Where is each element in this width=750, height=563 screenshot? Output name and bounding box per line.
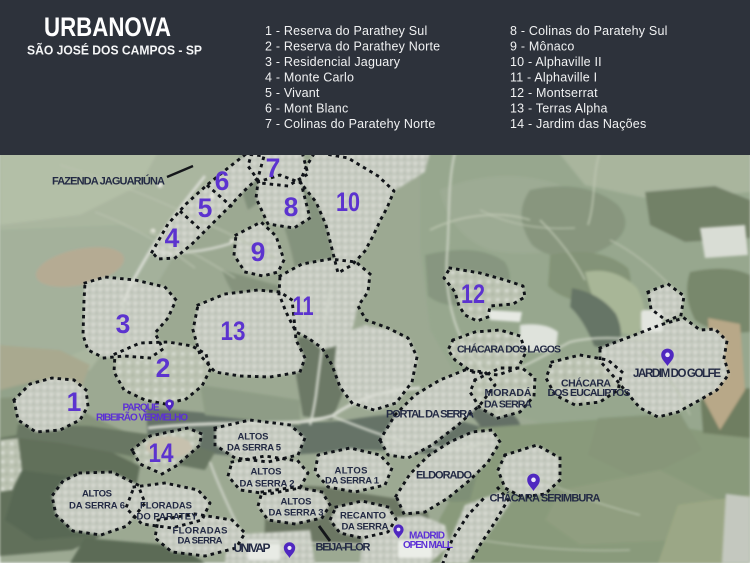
svg-text:DO PARATEY: DO PARATEY [137,512,199,523]
svg-text:5 - Vivant: 5 - Vivant [265,86,320,100]
svg-text:BEIJA-FLOR: BEIJA-FLOR [316,542,371,554]
svg-text:5: 5 [198,193,213,223]
svg-text:14 - Jardim das Nações: 14 - Jardim das Nações [510,117,646,131]
svg-text:DOS EUCALIPTOS: DOS EUCALIPTOS [548,387,631,399]
svg-text:9 - Mônaco: 9 - Mônaco [510,40,575,54]
svg-text:DA SERRA: DA SERRA [484,399,532,411]
svg-text:ALTOS: ALTOS [82,489,112,500]
svg-text:11: 11 [293,291,314,321]
svg-text:PORTAL DA SERRA: PORTAL DA SERRA [386,409,474,421]
svg-text:1 - Reserva do Parathey Sul: 1 - Reserva do Parathey Sul [265,24,427,38]
svg-text:13 - Terras Alpha: 13 - Terras Alpha [510,102,608,116]
svg-text:DA SERRA: DA SERRA [178,536,223,547]
svg-text:6 - Mont Blanc: 6 - Mont Blanc [265,102,348,116]
svg-text:7 - Colinas do Paratehy Norte: 7 - Colinas do Paratehy Norte [265,117,435,131]
svg-text:2 - Reserva do Parathey Norte: 2 - Reserva do Parathey Norte [265,40,440,54]
svg-text:ALTOS: ALTOS [251,467,282,478]
svg-text:UNIVAP: UNIVAP [234,541,271,555]
svg-text:ALTOS: ALTOS [281,497,312,508]
svg-text:4: 4 [165,223,180,253]
svg-text:7: 7 [266,153,281,183]
svg-text:3 - Residencial Jaguary: 3 - Residencial Jaguary [265,55,401,69]
svg-text:1: 1 [67,387,82,417]
svg-text:3: 3 [116,309,131,339]
svg-text:FLORADAS: FLORADAS [140,501,192,512]
svg-text:11 - Alphaville I: 11 - Alphaville I [510,71,597,85]
svg-text:9: 9 [251,237,266,267]
svg-text:CHÁCARA DOS LAGOS: CHÁCARA DOS LAGOS [457,343,561,356]
svg-text:12 - Montserrat: 12 - Montserrat [510,86,598,100]
svg-text:DA SERRA 6: DA SERRA 6 [69,501,125,512]
svg-text:8 - Colinas do Paratehy Sul: 8 - Colinas do Paratehy Sul [510,24,668,38]
svg-text:DA SERRA: DA SERRA [342,522,389,533]
svg-text:RIBEIRÃO VERMELHO: RIBEIRÃO VERMELHO [96,411,188,424]
svg-text:URBANOVA: URBANOVA [44,12,171,42]
svg-text:10: 10 [336,187,360,217]
svg-text:2: 2 [156,353,171,383]
svg-text:FAZENDA JAGUARIÚNA: FAZENDA JAGUARIÚNA [52,175,165,188]
svg-text:OPEN MALL: OPEN MALL [403,540,453,551]
svg-text:4 - Monte Carlo: 4 - Monte Carlo [265,71,354,85]
svg-text:8: 8 [284,192,299,222]
svg-text:13: 13 [221,316,246,346]
svg-text:RECANTO: RECANTO [340,511,386,522]
svg-text:DA SERRA 1: DA SERRA 1 [325,476,380,487]
svg-text:10 - Alphaville II: 10 - Alphaville II [510,55,602,69]
svg-text:14: 14 [149,438,174,468]
svg-text:JARDIM DO GOLFE: JARDIM DO GOLFE [633,368,721,380]
svg-text:DA SERRA 3: DA SERRA 3 [269,508,324,519]
svg-text:ALTOS: ALTOS [238,432,269,443]
svg-text:DA SERRA 5: DA SERRA 5 [227,443,282,454]
svg-text:ELDORADO: ELDORADO [416,470,472,482]
svg-text:DA SERRA 2: DA SERRA 2 [240,479,295,490]
svg-text:SÃO JOSÉ DOS CAMPOS - SP: SÃO JOSÉ DOS CAMPOS - SP [27,43,202,58]
svg-text:CHÁCARA SERIMBURA: CHÁCARA SERIMBURA [490,492,601,505]
svg-text:MORADÁ: MORADÁ [485,386,532,399]
svg-text:12: 12 [461,279,485,309]
svg-text:6: 6 [215,166,230,196]
